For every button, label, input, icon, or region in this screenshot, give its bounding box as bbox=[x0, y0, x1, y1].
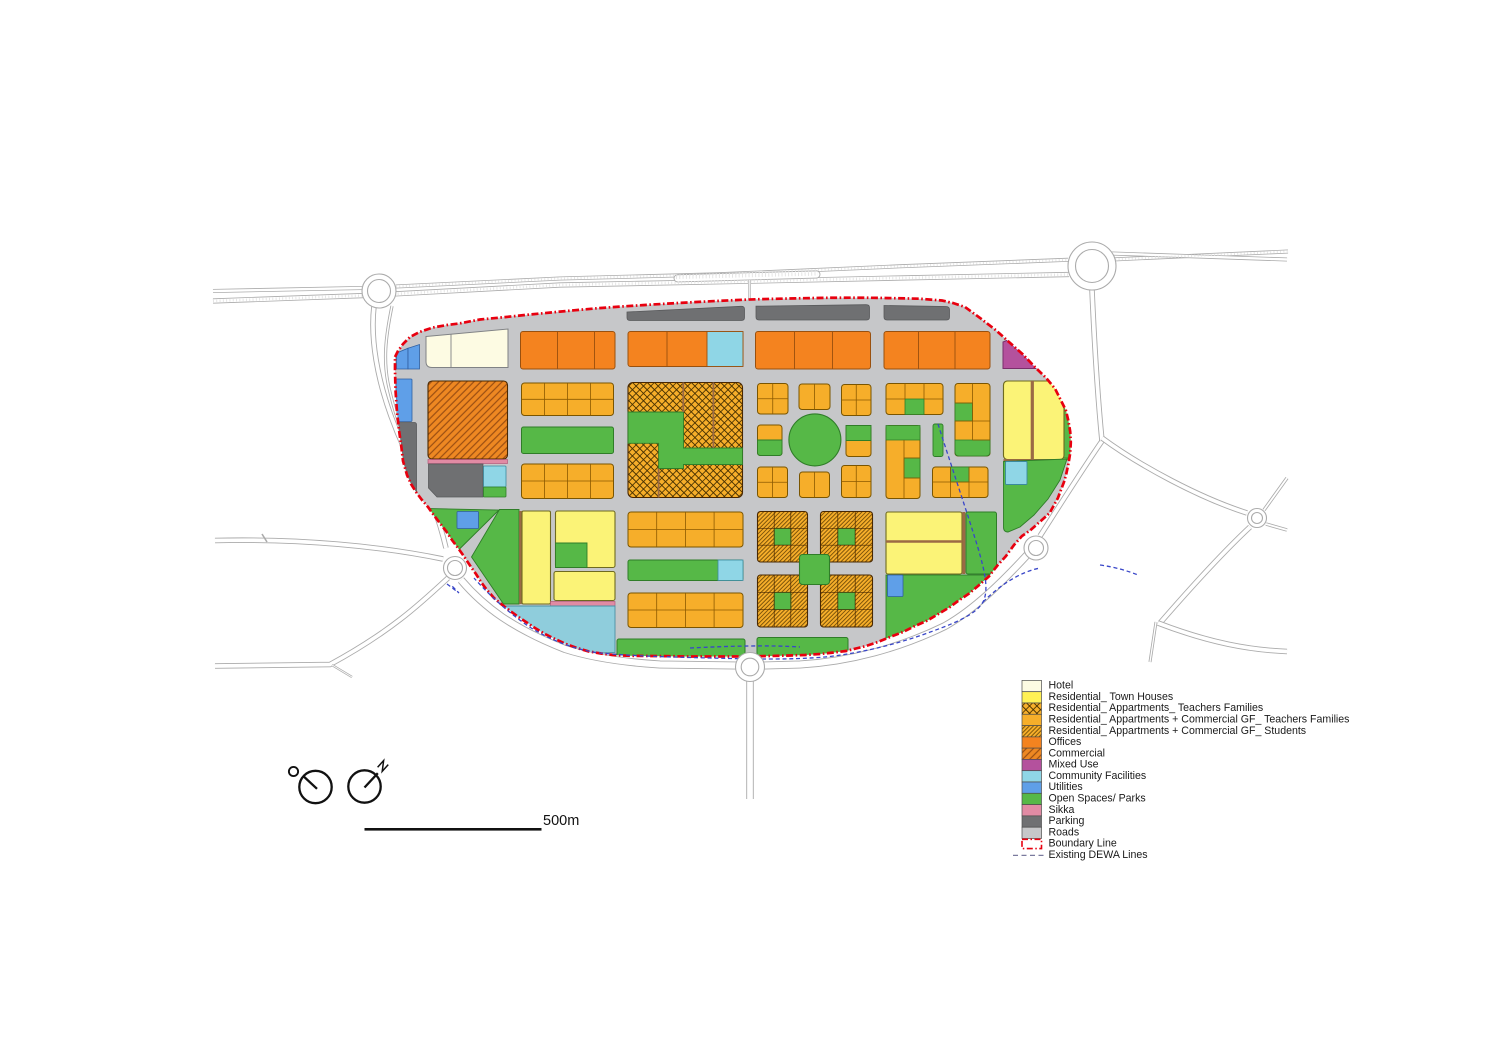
svg-text:Open Spaces/ Parks: Open Spaces/ Parks bbox=[1049, 793, 1146, 805]
svg-text:Sikka: Sikka bbox=[1049, 804, 1075, 816]
svg-text:Parking: Parking bbox=[1049, 815, 1085, 827]
svg-text:Residential_ Town Houses: Residential_ Town Houses bbox=[1049, 691, 1174, 703]
svg-text:Hotel: Hotel bbox=[1049, 680, 1074, 692]
svg-text:Roads: Roads bbox=[1049, 826, 1080, 838]
svg-text:Boundary Line: Boundary Line bbox=[1049, 838, 1117, 850]
svg-text:Residential_ Appartments_ Teac: Residential_ Appartments_ Teachers Famil… bbox=[1049, 702, 1264, 714]
svg-text:Existing DEWA Lines: Existing DEWA Lines bbox=[1049, 849, 1148, 861]
svg-text:Residential_ Appartments + Com: Residential_ Appartments + Commercial GF… bbox=[1049, 725, 1307, 737]
svg-text:Offices: Offices bbox=[1049, 736, 1082, 748]
svg-text:500m: 500m bbox=[543, 813, 579, 829]
svg-text:Residential_ Appartments + Com: Residential_ Appartments + Commercial GF… bbox=[1049, 714, 1350, 726]
svg-text:Mixed Use: Mixed Use bbox=[1049, 759, 1099, 771]
svg-text:Utilities: Utilities bbox=[1049, 781, 1083, 793]
svg-text:Commercial: Commercial bbox=[1049, 747, 1106, 759]
svg-text:Community Facilities: Community Facilities bbox=[1049, 770, 1147, 782]
